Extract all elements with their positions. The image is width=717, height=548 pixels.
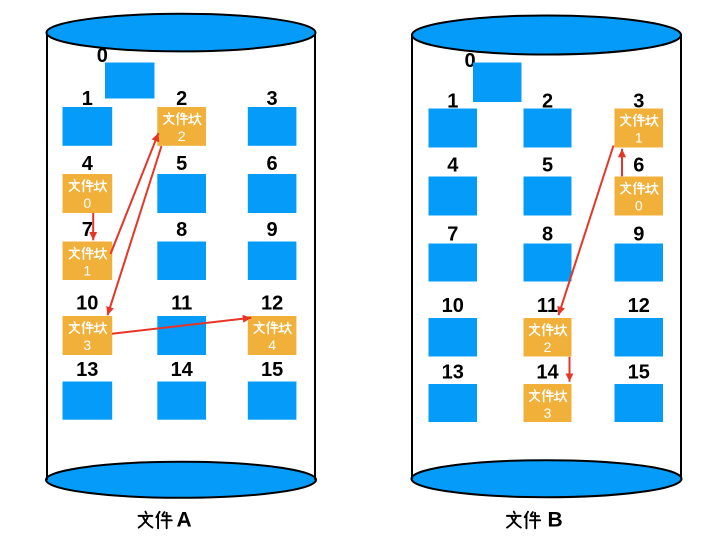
svg-text:10: 10 — [442, 295, 464, 317]
svg-text:9: 9 — [267, 219, 278, 241]
svg-text:1: 1 — [82, 88, 93, 110]
svg-text:3: 3 — [267, 88, 278, 110]
svg-text:9: 9 — [633, 223, 644, 245]
svg-text:B: B — [548, 508, 563, 531]
svg-text:3: 3 — [83, 337, 91, 353]
svg-text:12: 12 — [261, 293, 283, 315]
svg-text:8: 8 — [542, 223, 553, 245]
svg-text:1: 1 — [635, 130, 643, 146]
svg-text:8: 8 — [176, 219, 187, 241]
svg-text:11: 11 — [171, 293, 192, 315]
svg-text:7: 7 — [447, 223, 458, 245]
svg-text:6: 6 — [267, 153, 278, 175]
svg-text:6: 6 — [633, 155, 644, 177]
svg-text:2: 2 — [544, 339, 552, 355]
svg-text:1: 1 — [83, 263, 91, 279]
svg-text:10: 10 — [76, 293, 98, 315]
svg-text:14: 14 — [171, 359, 194, 381]
svg-text:0: 0 — [83, 195, 91, 211]
svg-text:15: 15 — [628, 362, 650, 384]
svg-text:13: 13 — [442, 362, 464, 384]
svg-text:0: 0 — [635, 198, 643, 214]
svg-text:11: 11 — [537, 295, 558, 317]
svg-text:2: 2 — [178, 128, 186, 144]
svg-text:4: 4 — [268, 337, 276, 353]
svg-text:2: 2 — [176, 88, 187, 110]
svg-text:15: 15 — [261, 359, 283, 381]
svg-text:7: 7 — [82, 219, 93, 241]
svg-text:A: A — [177, 508, 192, 531]
svg-text:12: 12 — [628, 295, 650, 317]
svg-text:5: 5 — [176, 153, 187, 175]
svg-text:13: 13 — [76, 359, 98, 381]
svg-text:14: 14 — [536, 362, 559, 384]
svg-text:4: 4 — [447, 155, 459, 177]
svg-text:5: 5 — [542, 155, 553, 177]
svg-text:3: 3 — [544, 405, 552, 421]
svg-text:4: 4 — [82, 153, 94, 175]
